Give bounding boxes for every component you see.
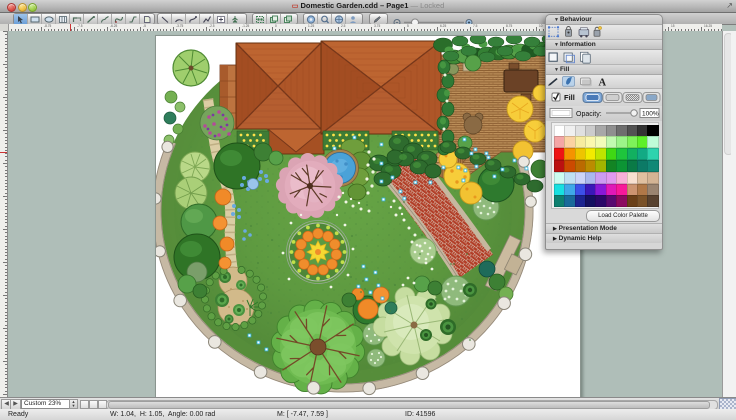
- svg-text:100%: 100%: [642, 111, 659, 118]
- svg-text:Fill: Fill: [564, 93, 575, 102]
- svg-text:Opacity:: Opacity:: [576, 111, 602, 118]
- svg-text:A: A: [599, 78, 607, 88]
